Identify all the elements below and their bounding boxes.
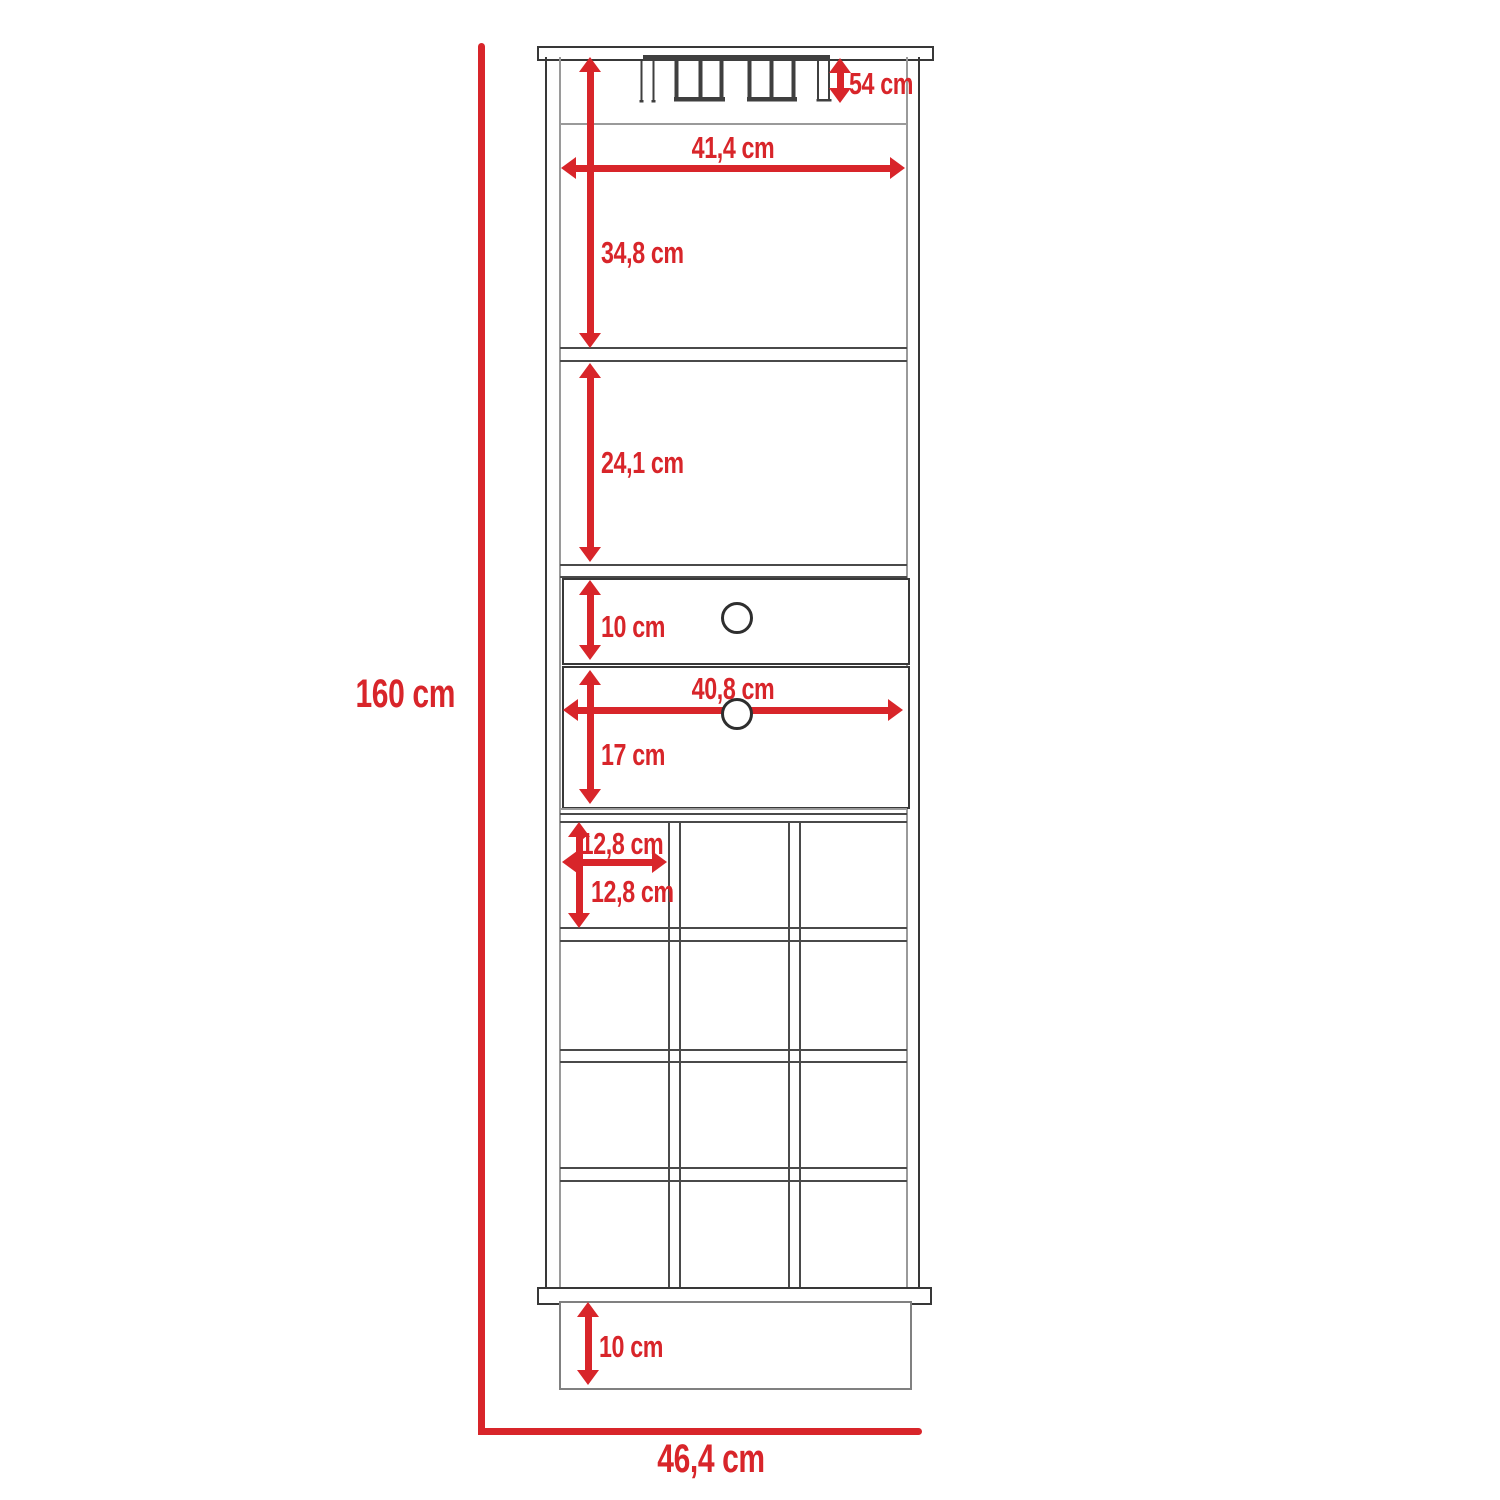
base-height-arrow	[577, 1302, 599, 1385]
drawer-width-label: 40,8 cm	[658, 673, 808, 704]
total-width-dimension-line	[478, 1428, 922, 1435]
wine-grid-row-divider	[560, 1061, 907, 1063]
wine-grid-vertical-divider	[799, 821, 801, 1288]
middle-shelf-height-label: 24,1 cm	[601, 447, 684, 478]
wine-cubby-height-label: 12,8 cm	[591, 876, 674, 907]
under-drawer-line-lower	[560, 813, 907, 815]
wine-grid-row-divider	[560, 1180, 907, 1182]
shelf-1-bottom-line	[560, 360, 907, 362]
upper-shelf-height-arrow	[579, 57, 601, 348]
stemware-rack-height-label: 54 cm	[849, 68, 913, 99]
upper-shelf-height-label: 34,8 cm	[601, 237, 684, 268]
wine-grid-vertical-divider	[788, 821, 790, 1288]
wine-grid-top-line	[560, 821, 907, 823]
stemware-rack-rail	[643, 55, 830, 61]
top-drawer-height-arrow	[579, 580, 601, 660]
under-drawer-line-upper	[560, 808, 907, 810]
left-side-panel-outer-edge	[545, 57, 547, 1288]
drawer-1-knob	[721, 602, 753, 634]
upper-interior-width-label: 41,4 cm	[658, 132, 808, 163]
wine-cubby-width-label: 12,8 cm	[547, 828, 697, 859]
wine-grid-vertical-divider	[679, 821, 681, 1288]
bottom-drawer-height-label: 17 cm	[601, 739, 665, 770]
total-height-label: 160 cm	[305, 674, 455, 714]
shelf-2-top-line	[560, 564, 907, 566]
dimension-diagram: 160 cm 46,4 cm 54 cm 41,4 cm 34,8 cm 24,…	[0, 0, 1500, 1500]
right-side-panel-outer-edge	[918, 57, 920, 1288]
bottom-drawer-height-arrow	[579, 670, 601, 804]
shelf-1-top-line	[560, 347, 907, 349]
top-drawer-height-label: 10 cm	[601, 611, 665, 642]
wine-grid-row-divider	[560, 1049, 907, 1051]
total-height-dimension-line	[478, 43, 485, 1435]
stemware-rack	[637, 54, 837, 106]
total-width-label: 46,4 cm	[636, 1439, 786, 1479]
wine-grid-row-divider	[560, 1167, 907, 1169]
middle-shelf-height-arrow	[579, 363, 601, 562]
left-side-panel-inner-edge	[559, 57, 561, 1288]
base-height-label: 10 cm	[599, 1331, 663, 1362]
wine-grid-row-divider	[560, 940, 907, 942]
stemware-rack-height-arrow	[829, 58, 851, 103]
wine-grid-row-divider	[560, 927, 907, 929]
stemware-compartment-bottom-line	[560, 123, 907, 125]
